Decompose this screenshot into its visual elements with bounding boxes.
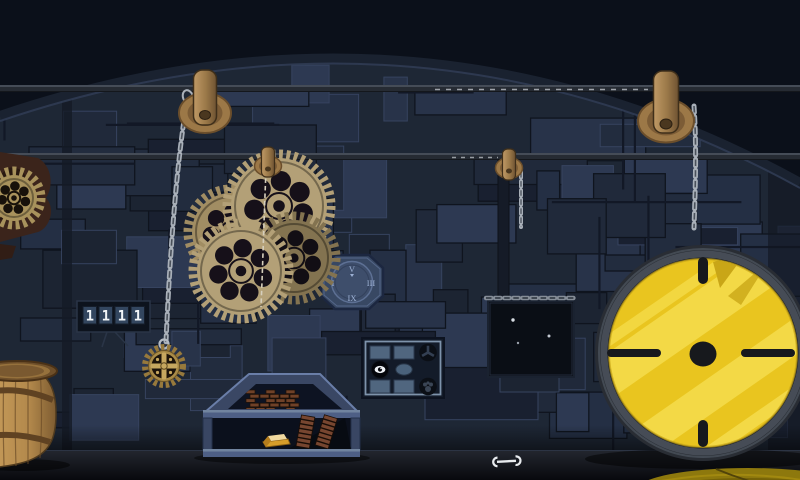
wheel-mark-right — [741, 349, 795, 357]
brick-wall[interactable] — [246, 390, 299, 411]
dial-bottom-label: IX — [348, 293, 357, 303]
grid-tile[interactable] — [370, 380, 390, 393]
digit-2: 1 — [102, 309, 110, 325]
strap-hole — [200, 111, 211, 120]
panel-dot — [511, 318, 514, 321]
shelf-board-edge — [203, 410, 360, 413]
wheel-hub — [690, 342, 717, 367]
strap-hole — [506, 169, 512, 174]
dark-panel[interactable] — [488, 301, 574, 377]
shelf-side-left — [203, 418, 212, 450]
pulley-strap — [503, 149, 516, 180]
game-scene: 1 1 1 1 V I III IX — [0, 0, 800, 480]
grid-paw-icon[interactable] — [419, 378, 437, 396]
wall-seam — [62, 60, 72, 452]
wheel-mark-left — [607, 349, 661, 357]
panel-dot — [517, 342, 519, 344]
digit-4: 1 — [134, 309, 142, 325]
grid-tile[interactable] — [394, 346, 414, 359]
rod-lower — [0, 153, 800, 160]
grid-oval-tile[interactable] — [396, 364, 412, 375]
wheel-mark-bottom — [698, 420, 708, 447]
rod-upper — [0, 85, 800, 92]
shelf-bottom-edge — [203, 449, 360, 452]
pulley-strap — [262, 147, 275, 177]
panel-dot — [548, 335, 551, 338]
wheel-mark-top — [698, 257, 708, 284]
dial-right-label: III — [367, 278, 376, 288]
grid-eye-icon[interactable] — [371, 361, 389, 379]
grid-tile[interactable] — [370, 346, 390, 359]
strap-hole — [660, 119, 672, 129]
digit-1: 1 — [86, 309, 94, 325]
dial-top-label: V — [349, 264, 356, 274]
grid-tile[interactable] — [394, 380, 414, 393]
strap-hole — [265, 167, 271, 172]
digit-3: 1 — [118, 309, 126, 325]
grid-wheel-icon[interactable] — [419, 344, 437, 362]
shelf-side-right — [351, 418, 360, 450]
wall-pipe — [498, 160, 509, 301]
symbol-grid[interactable] — [362, 338, 444, 398]
